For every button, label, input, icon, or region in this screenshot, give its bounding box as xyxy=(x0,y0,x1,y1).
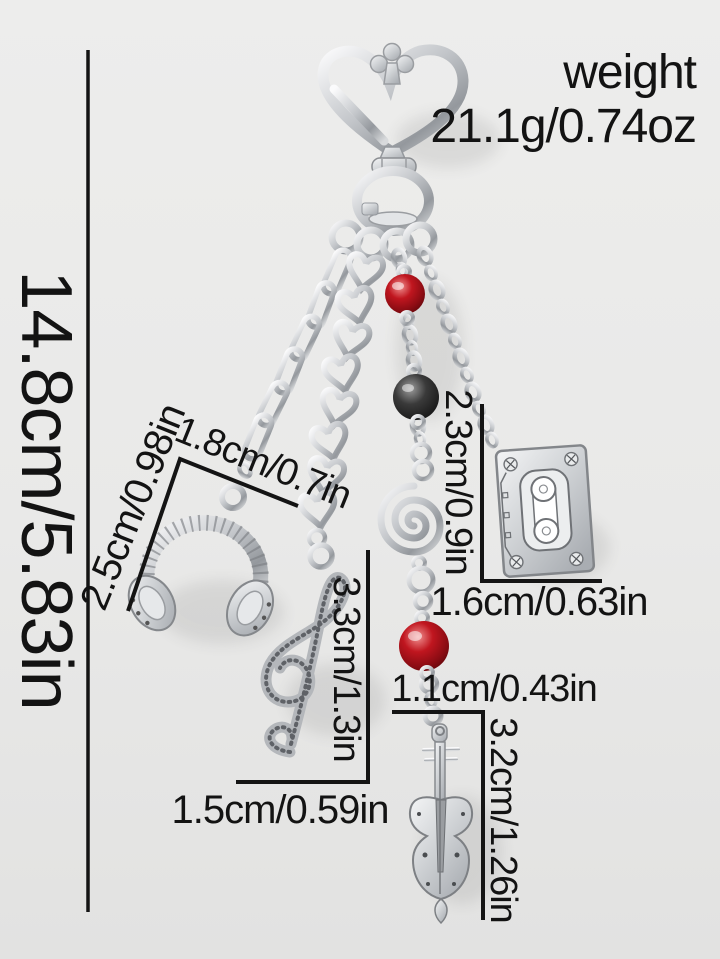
treble-clef-width-label: 1.5cm/0.59in xyxy=(171,790,388,830)
violin-width-label: 1.1cm/0.43in xyxy=(391,670,597,708)
spiral-charm-icon xyxy=(381,486,440,552)
weight-label: weight xyxy=(430,46,696,100)
product-photo: weight 21.1g/0.74oz 14.8cm/5.83in 2.5cm/… xyxy=(0,0,720,959)
violin-height-label: 3.2cm/1.26in xyxy=(484,717,522,923)
cassette-width-label: 1.6cm/0.63in xyxy=(430,582,647,622)
treble-clef-height-label: 3.3cm/1.3in xyxy=(327,576,365,761)
cassette-height-label: 2.3cm/0.9in xyxy=(439,389,477,574)
cassette-charm-icon xyxy=(496,445,595,577)
weight-annotation: weight 21.1g/0.74oz xyxy=(430,46,696,154)
clover-ornament-icon xyxy=(371,44,414,85)
overall-height-label: 14.8cm/5.83in xyxy=(10,270,82,709)
weight-value: 21.1g/0.74oz xyxy=(430,100,696,154)
